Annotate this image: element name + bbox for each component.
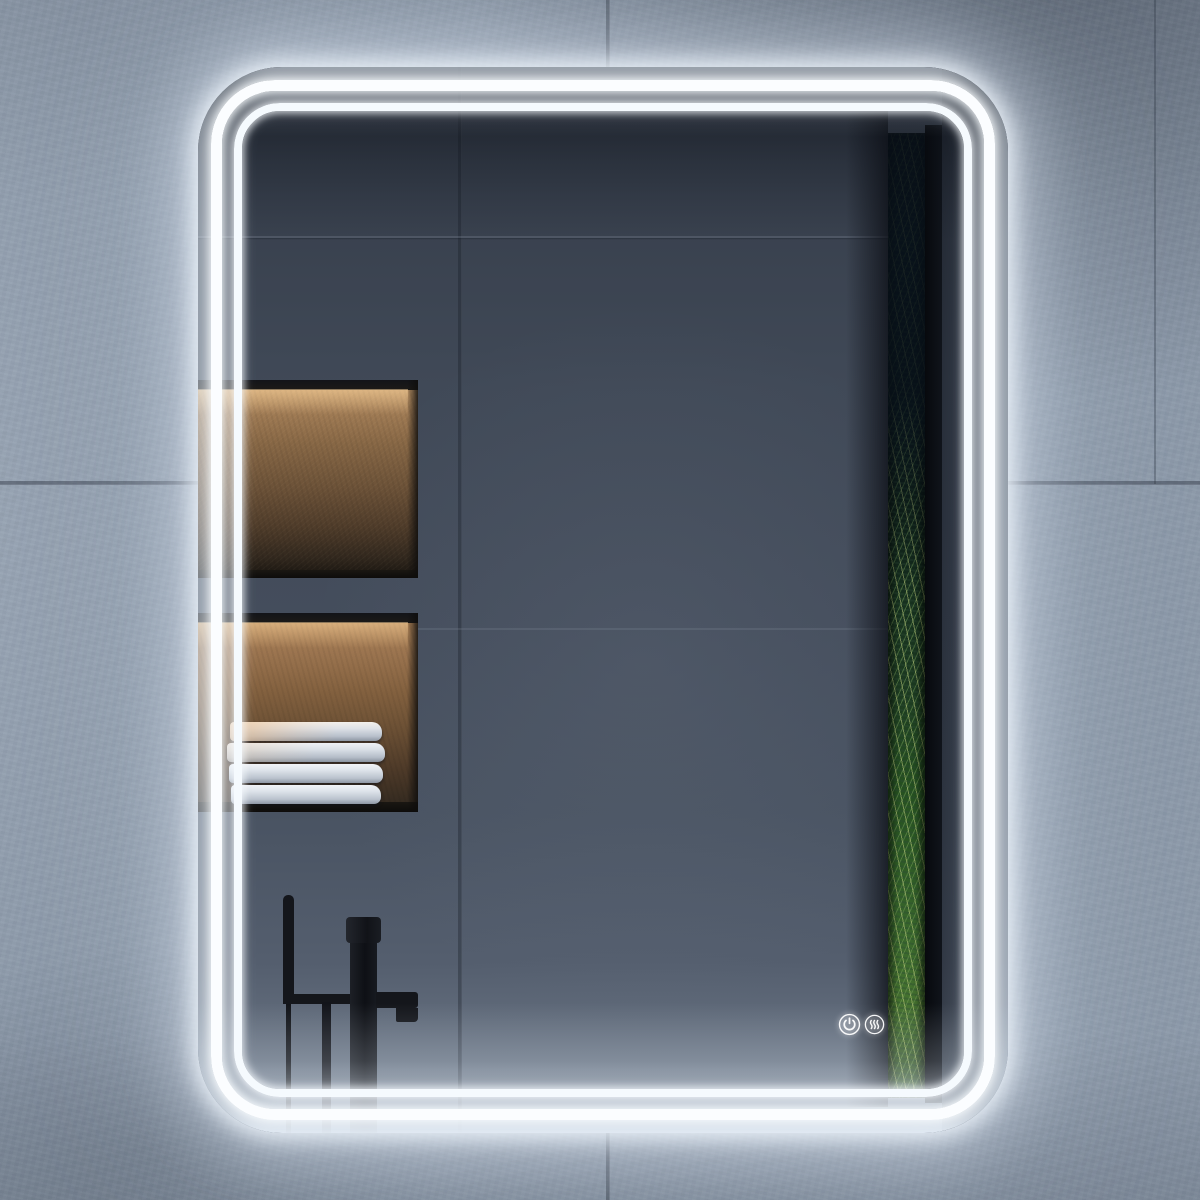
power-button [838,1013,861,1036]
led-band-inner [234,103,972,1097]
power-icon [838,1013,861,1036]
defogger-button [864,1014,885,1035]
tile-grout-vertical-right [1154,0,1156,484]
led-mirror [198,67,1008,1133]
defogger-icon [864,1014,885,1035]
touch-controls [838,1013,885,1036]
